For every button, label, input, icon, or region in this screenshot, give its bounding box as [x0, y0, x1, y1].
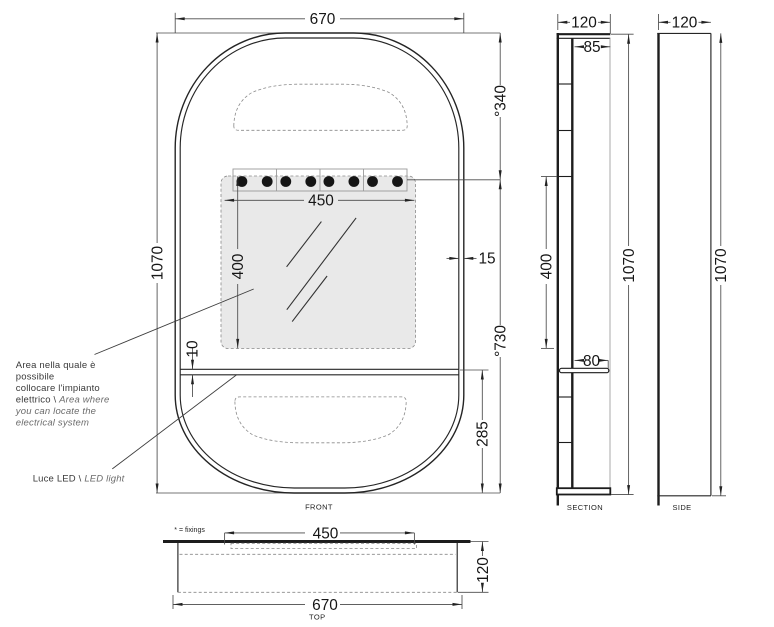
svg-text:1070: 1070 [713, 248, 730, 282]
svg-text:* = fixings: * = fixings [174, 527, 205, 534]
svg-text:SIDE: SIDE [672, 503, 691, 512]
svg-text:collocare l'impianto: collocare l'impianto [16, 383, 100, 394]
svg-text:°730: °730 [493, 325, 510, 357]
svg-text:1070: 1070 [150, 246, 167, 280]
svg-text:670: 670 [310, 11, 336, 28]
svg-text:Luce LED \ LED light: Luce LED \ LED light [33, 474, 125, 485]
svg-text:450: 450 [313, 525, 339, 542]
svg-text:electrical system: electrical system [16, 418, 89, 429]
svg-text:120: 120 [571, 15, 597, 32]
svg-text:1070: 1070 [621, 248, 638, 282]
svg-text:elettrico \ Area where: elettrico \ Area where [16, 395, 110, 406]
svg-text:670: 670 [312, 597, 338, 614]
svg-text:SECTION: SECTION [567, 503, 603, 512]
svg-text:Area nella quale è: Area nella quale è [16, 360, 96, 371]
svg-text:450: 450 [308, 193, 334, 210]
svg-text:85: 85 [583, 39, 600, 56]
svg-text:120: 120 [672, 15, 698, 32]
svg-text:possibile: possibile [16, 372, 55, 383]
svg-text:15: 15 [479, 251, 496, 268]
svg-text:400: 400 [539, 254, 556, 280]
svg-text:TOP: TOP [309, 612, 325, 621]
svg-text:FRONT: FRONT [305, 503, 333, 512]
svg-text:10: 10 [185, 340, 202, 357]
svg-text:400: 400 [230, 254, 247, 280]
svg-text:you can locate the: you can locate the [15, 406, 96, 417]
svg-text:285: 285 [475, 421, 492, 447]
svg-text:80: 80 [583, 353, 600, 370]
svg-text:120: 120 [475, 557, 492, 583]
svg-text:°340: °340 [493, 85, 510, 117]
